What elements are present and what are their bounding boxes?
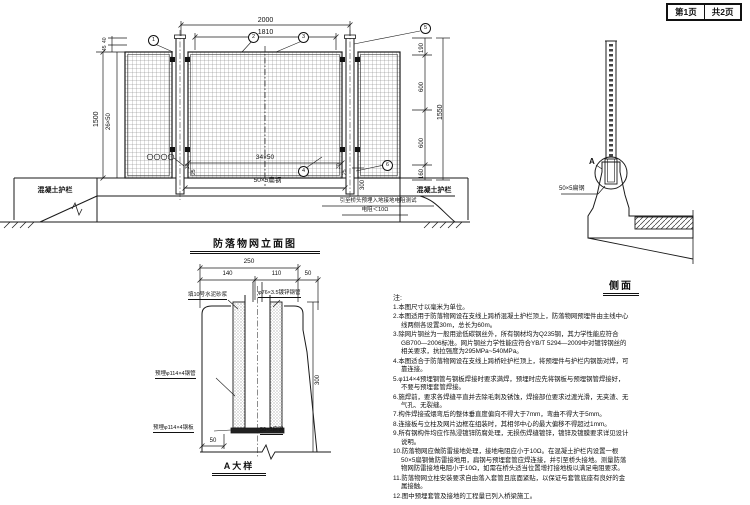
note-item: 11.防落物网立柱安装要求自由落入套管且底面紧贴，以保证与套管底座有良好的金属接… (393, 475, 629, 492)
note-item: 4.本图适合于防落物网设在支线上跨桥砼护栏顶上，将预埋件与护栏内钢筋对焊，可靠连… (393, 358, 629, 375)
dim-600-lower: 600 (419, 138, 425, 148)
dim-mesh-horizontal: 34×50 (188, 155, 342, 162)
note-item: 1.本图尺寸以毫米为单位。 (393, 304, 629, 312)
note-item: 8.连接板与立柱及网片边框在组装时，其相邻中心的最大偏移不得超过1mm。 (393, 421, 629, 429)
callout-2: 2 (248, 32, 259, 43)
sheet-page-total: 共2页 (705, 5, 741, 19)
elevation-title: 防落物网立面图 (190, 235, 320, 254)
sleeve-pipe-label: 预埋φ114×4钢管 (155, 372, 196, 379)
sheet-page-number: 第1页 (668, 5, 705, 19)
dim-25-left: 25 (192, 169, 197, 175)
callout-3: 3 (298, 32, 309, 43)
detail-dim-50-top: 50 (298, 271, 318, 277)
dim-embed-300: 300 (360, 180, 366, 190)
ground-hatch-left (4, 222, 34, 228)
mortar-annulus-right (270, 302, 282, 428)
note-item: 9.所有钢构件均应作热浸镀锌防腐处理，无损伤焊缝镀锌，镀锌及镀膜要求详见设计说明… (393, 430, 629, 447)
sheet-number-box: 第1页 共2页 (666, 3, 742, 21)
dim-1500: 1500 (93, 111, 100, 127)
barrier-label-right: 混凝土护栏 (402, 187, 466, 194)
dim-40: 40 (103, 37, 108, 43)
detail-mark-a: A (589, 158, 595, 166)
ground-note-line1: 引至桥头预埋入地接地电阻测试 (322, 199, 434, 205)
drawing-linework (0, 0, 750, 505)
detail-dim-50-bottom: 50 (202, 438, 224, 444)
dim-190: 190 (419, 43, 425, 53)
notes-heading: 注: (393, 293, 629, 303)
flat-steel-label: 50×5扁钢 (215, 178, 320, 185)
notes-block: 注: 1.本图尺寸以毫米为单位。 2.本图适用于防落物网设在支线上跨桥混凝土护栏… (393, 293, 629, 502)
dim-160: 160 (419, 169, 425, 179)
dim-2000: 2000 (181, 17, 350, 24)
dim-25-right: 25 (343, 169, 348, 175)
detail-dim-110: 110 (255, 271, 298, 277)
mortar-label: 填10号水泥砂浆 (188, 293, 227, 300)
dim-45: 45 (103, 45, 108, 51)
dim-1550: 1550 (437, 104, 444, 120)
callout-4: 4 (298, 166, 309, 177)
dim-mesh-vertical: 26×50 (106, 113, 112, 130)
mesh-panel-right (358, 52, 400, 178)
callout-5: 5 (420, 23, 431, 34)
side-flat-steel-label: 50×5扁钢 (559, 186, 585, 192)
callout-1: 1 (148, 35, 159, 46)
detail-dim-300: 300 (315, 375, 321, 385)
side-deck-slab (635, 217, 693, 229)
note-item: 2.本图适用于防落物网设在支线上跨桥混凝土护栏顶上，防落物网预埋件由主线中心线两… (393, 313, 629, 330)
detail-a-title: A大样 (212, 459, 266, 476)
dim-1810: 1810 (195, 29, 336, 36)
detail-dim-250: 250 (200, 259, 298, 266)
dim-600-upper: 600 (419, 82, 425, 92)
barrier-label-left: 混凝土护栏 (16, 187, 94, 194)
mortar-annulus-left (233, 302, 245, 428)
note-item: 12.图中预埋套管及接地的工程量已列入桥梁施工。 (393, 493, 629, 501)
note-item: 7.构件焊接或煨弯后的整体垂直度偏向不得大于7mm，弯曲不得大于5mm。 (393, 411, 629, 419)
ground-note-line2: 电阻＜10Ω (342, 208, 408, 214)
post-pipe-label: φ76×3.5镀锌钢管 (258, 291, 301, 298)
callout-6: 6 (382, 160, 393, 171)
note-item: 5.φ114×4预埋钢管与钢板焊接时要求满焊，预埋时应先将钢板与预埋钢管焊接好，… (393, 376, 629, 393)
detail-dim-140: 140 (200, 271, 255, 277)
base-plate-label: 预埋φ114×4钢板 (153, 426, 194, 433)
note-item: 10.防落物网应做防雷接地处理，接地电阻应小于10Ω。在混凝土护栏内设置一根50… (393, 448, 629, 473)
note-item: 3.除网片钢丝为一般用途低碳钢丝外，所有钢材均为Q235钢，其力学性能应符合GB… (393, 331, 629, 356)
drawing-sheet: 第1页 共2页 2000 1810 1500 26×50 40 45 190 6… (0, 0, 750, 505)
mesh-panels (125, 46, 400, 186)
detail-flat-steel-label: 50×5扁钢 (260, 428, 283, 435)
side-view (561, 41, 693, 264)
note-item: 6.施焊前，要求各焊缝平直并去除毛刺及锈蚀，焊接部位要求过渡光滑，无夹渣、无气孔… (393, 394, 629, 411)
ground-hatch-right (424, 222, 462, 228)
